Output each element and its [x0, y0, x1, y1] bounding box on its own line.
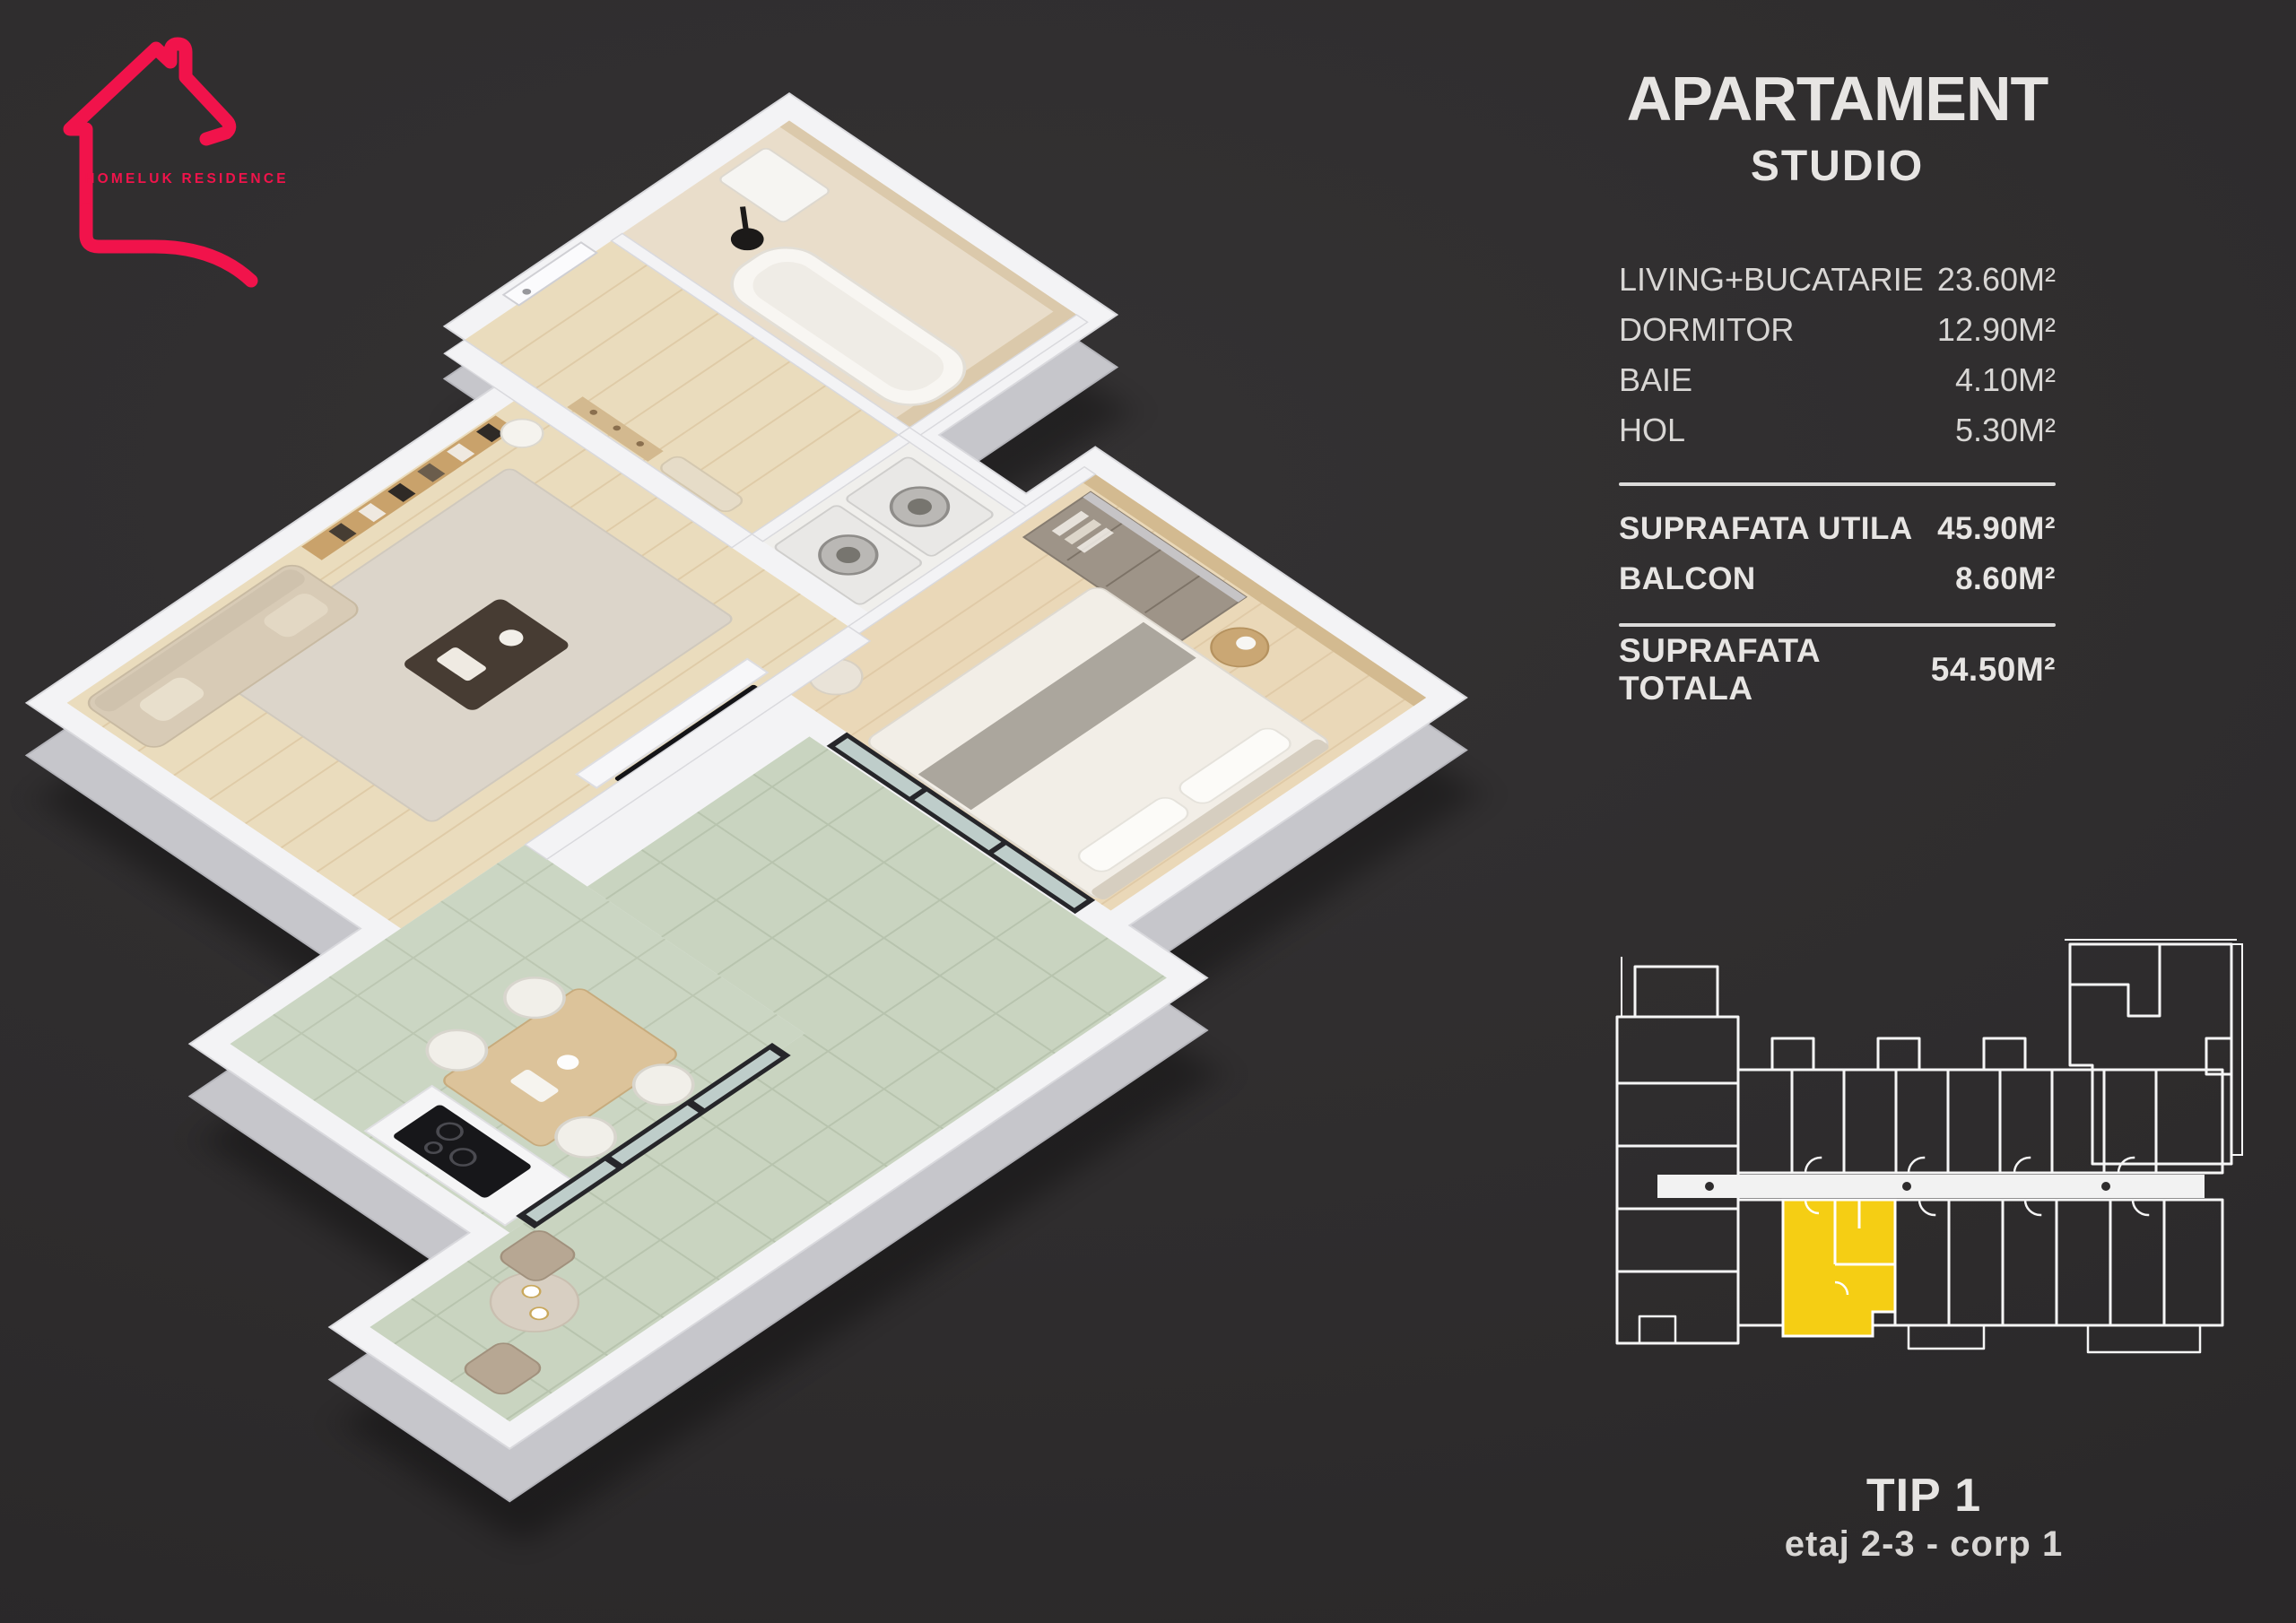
- room-value: 23.60M²: [1937, 261, 2056, 299]
- area-row: BAIE 4.10M²: [1619, 355, 2056, 405]
- summary-label: SUPRAFATA UTILA: [1619, 511, 1913, 547]
- area-row: DORMITOR 12.90M²: [1619, 305, 2056, 355]
- flyer-page: HOMELUK RESIDENCE: [0, 0, 2296, 1623]
- apartment-title: APARTAMENT: [1619, 66, 2056, 133]
- area-row: LIVING+BUCATARIE 23.60M²: [1619, 255, 2056, 305]
- room-value: 5.30M²: [1955, 412, 2056, 449]
- room-label: LIVING+BUCATARIE: [1619, 261, 1924, 299]
- total-label: SUPRAFATA TOTALA: [1619, 632, 1931, 707]
- room-value: 12.90M²: [1937, 311, 2056, 349]
- unit: [1635, 967, 1718, 1017]
- room-value: 4.10M²: [1955, 361, 2056, 399]
- summary-value: 45.90M²: [1937, 511, 2056, 547]
- apartment-3d-floorplan: [0, 0, 1578, 1623]
- top-row-units: [1738, 1038, 2222, 1173]
- divider: [1619, 623, 2056, 627]
- divider: [1619, 482, 2056, 486]
- unit-location-label: etaj 2-3 - corp 1: [1619, 1524, 2229, 1565]
- total-value: 54.50M²: [1931, 651, 2056, 689]
- summary-label: BALCON: [1619, 561, 1756, 597]
- tower-unit: [2066, 940, 2242, 1164]
- highlighted-unit: [1783, 1200, 1895, 1336]
- total-row: SUPRAFATA TOTALA 54.50M²: [1619, 645, 2056, 695]
- apartment-subtitle: STUDIO: [1619, 142, 2056, 191]
- area-row: HOL 5.30M²: [1619, 405, 2056, 456]
- summary-list: SUPRAFATA UTILA 45.90M² BALCON 8.60M²: [1619, 504, 2056, 604]
- building-mini-plan: [1604, 931, 2296, 1359]
- summary-row: SUPRAFATA UTILA 45.90M²: [1619, 504, 2056, 554]
- room-label: HOL: [1619, 412, 1685, 449]
- room-areas-list: LIVING+BUCATARIE 23.60M² DORMITOR 12.90M…: [1619, 255, 2056, 456]
- corridor: [1657, 1175, 2205, 1198]
- unit-type-label: TIP 1: [1619, 1469, 2229, 1523]
- room-label: BAIE: [1619, 361, 1692, 399]
- room-label: DORMITOR: [1619, 311, 1794, 349]
- summary-value: 8.60M²: [1955, 561, 2056, 597]
- summary-row: BALCON 8.60M²: [1619, 554, 2056, 604]
